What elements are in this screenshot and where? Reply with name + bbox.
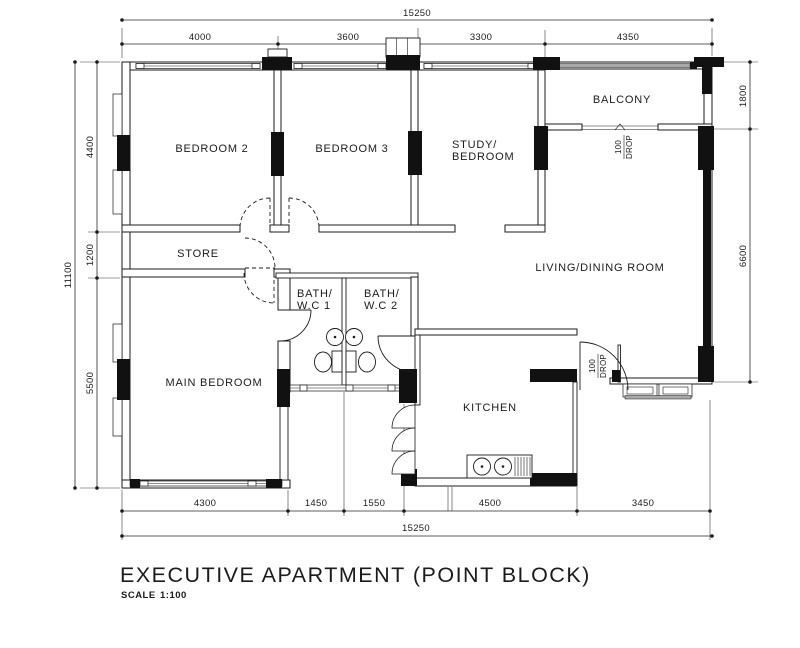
label-kitchen: KITCHEN <box>463 402 517 414</box>
dim-bottom-3: 4500 <box>479 498 501 509</box>
dim-top-1: 3600 <box>337 32 359 43</box>
label-store: STORE <box>177 248 219 260</box>
label-main-bedroom: MAIN BEDROOM <box>166 377 263 389</box>
dim-left-0: 4400 <box>85 136 96 158</box>
dim-bottom-4: 3450 <box>632 498 654 509</box>
kitchen-sink <box>467 455 532 478</box>
label-bath1-line1: BATH/ <box>297 288 333 300</box>
toilet-1 <box>315 352 332 372</box>
dim-top-3: 4350 <box>617 32 639 43</box>
floor-plan-page: 15250 4000 3600 3300 4350 11100 4400 120… <box>0 0 800 648</box>
dim-top-2: 3300 <box>470 32 492 43</box>
dim-top-0: 4000 <box>189 32 211 43</box>
dim-bottom-2: 1550 <box>363 498 385 509</box>
dim-top-total: 15250 <box>403 8 431 19</box>
dim-left-total: 11100 <box>63 262 74 289</box>
label-bath2-line2: W.C 2 <box>364 300 398 312</box>
toilet-2 <box>359 352 376 372</box>
label-bath2-line1: BATH/ <box>364 288 400 300</box>
drop-annotation-kitchen: 100 DROP <box>588 354 608 378</box>
drop2-word: DROP <box>599 354 608 378</box>
dim-bottom-total: 15250 <box>402 523 430 534</box>
scale-label: SCALE <box>121 590 156 601</box>
dim-right-0: 1800 <box>738 85 749 107</box>
label-living-dining: LIVING/DINING ROOM <box>535 262 664 274</box>
label-bedroom-3: BEDROOM 3 <box>315 143 388 155</box>
scale-value: 1:100 <box>160 590 187 601</box>
label-balcony: BALCONY <box>593 94 651 106</box>
drop-annotation-balcony: 100 DROP <box>614 135 634 159</box>
label-study-line2: BEDROOM <box>452 151 514 163</box>
label-bedroom-2: BEDROOM 2 <box>175 143 248 155</box>
label-study-line1: STUDY/ <box>452 139 497 151</box>
drawing-title: EXECUTIVE APARTMENT (POINT BLOCK) <box>120 563 591 587</box>
dim-left-2: 5500 <box>85 372 96 394</box>
label-bath1-line2: W.C 1 <box>297 300 331 312</box>
dim-bottom-1: 1450 <box>305 498 327 509</box>
drop2-value: 100 <box>588 359 597 373</box>
drop1-word: DROP <box>625 135 634 159</box>
dim-right-1: 6600 <box>738 245 749 267</box>
dim-bottom-0: 4300 <box>194 498 216 509</box>
drop1-value: 100 <box>614 140 623 154</box>
extension-lines <box>80 28 758 540</box>
dim-left-1: 1200 <box>85 244 96 266</box>
title-block: EXECUTIVE APARTMENT (POINT BLOCK) SCALE … <box>120 563 591 601</box>
floor-plan-drawing: 15250 4000 3600 3300 4350 11100 4400 120… <box>0 0 800 648</box>
